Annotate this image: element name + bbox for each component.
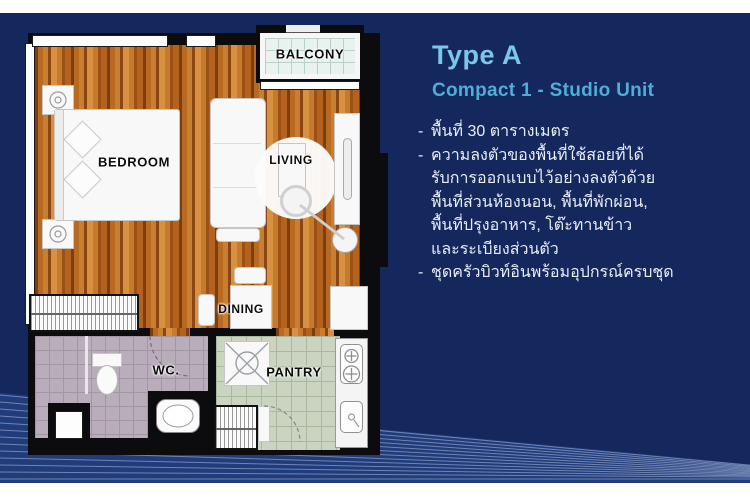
top-window-band [32, 35, 168, 47]
wardrobe [29, 294, 139, 332]
pantry-label: PANTRY [266, 365, 322, 380]
refrigerator [330, 286, 368, 330]
feature-text: พื้นที่ส่วนห้องนอน, พื้นที่พักผ่อน, [431, 191, 648, 215]
bullet-dash [418, 191, 431, 215]
pantry-counter-table [224, 341, 270, 386]
coffee-table [280, 185, 312, 217]
feature-list: -พื้นที่ 30 ตารางเมตร -ความลงตัวของพื้นท… [418, 120, 748, 285]
feature-text: พื้นที่ปรุงอาหาร, โต๊ะทานข้าว [431, 214, 632, 238]
wc-label: WC. [152, 363, 179, 378]
feature-line: รับการออกแบบไว้อย่างลงตัวด้วย [418, 167, 748, 191]
sofa-cushion-line [213, 143, 261, 144]
bullet-dash [418, 167, 431, 191]
wardrobe-rail [31, 313, 137, 315]
balcony-railing [286, 25, 320, 33]
laundry-rail [216, 428, 256, 430]
bed-pillow-2 [63, 160, 101, 198]
wash-basin [156, 399, 200, 433]
dining-label: DINING [218, 302, 264, 316]
bullet-dash: - [418, 144, 431, 168]
tv-feature-wall [362, 153, 388, 267]
wall-wc-top-right [190, 328, 216, 336]
feature-line: -ชุดครัวบิวท์อินพร้อมอุปกรณ์ครบชุด [418, 261, 748, 285]
bullet-dash [418, 214, 431, 238]
feature-line: และระเบียงส่วนตัว [418, 238, 748, 262]
bed-headboard [55, 110, 64, 220]
tv-console [334, 113, 360, 225]
feature-text: ความลงตัวของพื้นที่ใช้สอยที่ได้ [431, 144, 644, 168]
feature-line: พื้นที่ส่วนห้องนอน, พื้นที่พักผ่อน, [418, 191, 748, 215]
balcony-label: BALCONY [276, 47, 344, 62]
shower-partition [85, 336, 88, 394]
feature-text: ชุดครัวบิวท์อินพร้อมอุปกรณ์ครบชุด [431, 261, 674, 285]
wall-pantry-top [216, 328, 276, 336]
feature-text: รับการออกแบบไว้อย่างลงตัวด้วย [431, 167, 655, 191]
top-window-segment [186, 35, 216, 47]
marketing-slide: { "panel": { "title": "Type A", "subtitl… [0, 0, 750, 500]
dining-chair-top [234, 267, 266, 284]
left-window-wall [25, 43, 35, 325]
nightstand-bottom [42, 219, 74, 249]
bed-pillow-1 [63, 120, 101, 158]
floor-lamp [332, 227, 358, 253]
unit-type-title: Type A [432, 40, 522, 71]
stove [340, 344, 363, 384]
bedroom-label: BEDROOM [98, 155, 170, 170]
entrance-step [55, 411, 83, 439]
sofa-cushion-line [213, 187, 261, 188]
toilet-bowl [96, 365, 118, 395]
kitchen-sink [340, 401, 363, 433]
top-white-band [0, 0, 750, 13]
bullet-dash: - [418, 120, 431, 144]
feature-line: -พื้นที่ 30 ตารางเมตร [418, 120, 748, 144]
feature-line: -ความลงตัวของพื้นที่ใช้สอยที่ได้ [418, 144, 748, 168]
sofa-foot-stool [216, 228, 260, 242]
feature-line: พื้นที่ปรุงอาหาร, โต๊ะทานข้าว [418, 214, 748, 238]
unit-subtitle: Compact 1 - Studio Unit [432, 80, 654, 102]
bottom-white-band [0, 483, 750, 500]
wc-door-opening [150, 328, 190, 336]
feature-text: และระเบียงส่วนตัว [431, 238, 559, 262]
living-label: LIVING [269, 153, 313, 167]
pantry-door-opening [276, 328, 334, 336]
bullet-dash: - [418, 261, 431, 285]
feature-text: พื้นที่ 30 ตารางเมตร [431, 120, 569, 144]
door-leaf [258, 406, 270, 442]
balcony-sliding-door [260, 81, 360, 90]
tv-console-handle [343, 138, 352, 200]
floor-plan: BEDROOM LIVING BALCONY DINING WC. PANTRY [28, 13, 400, 465]
bullet-dash [418, 238, 431, 262]
laundry-unit [214, 405, 258, 450]
dining-chair-left [198, 294, 215, 326]
